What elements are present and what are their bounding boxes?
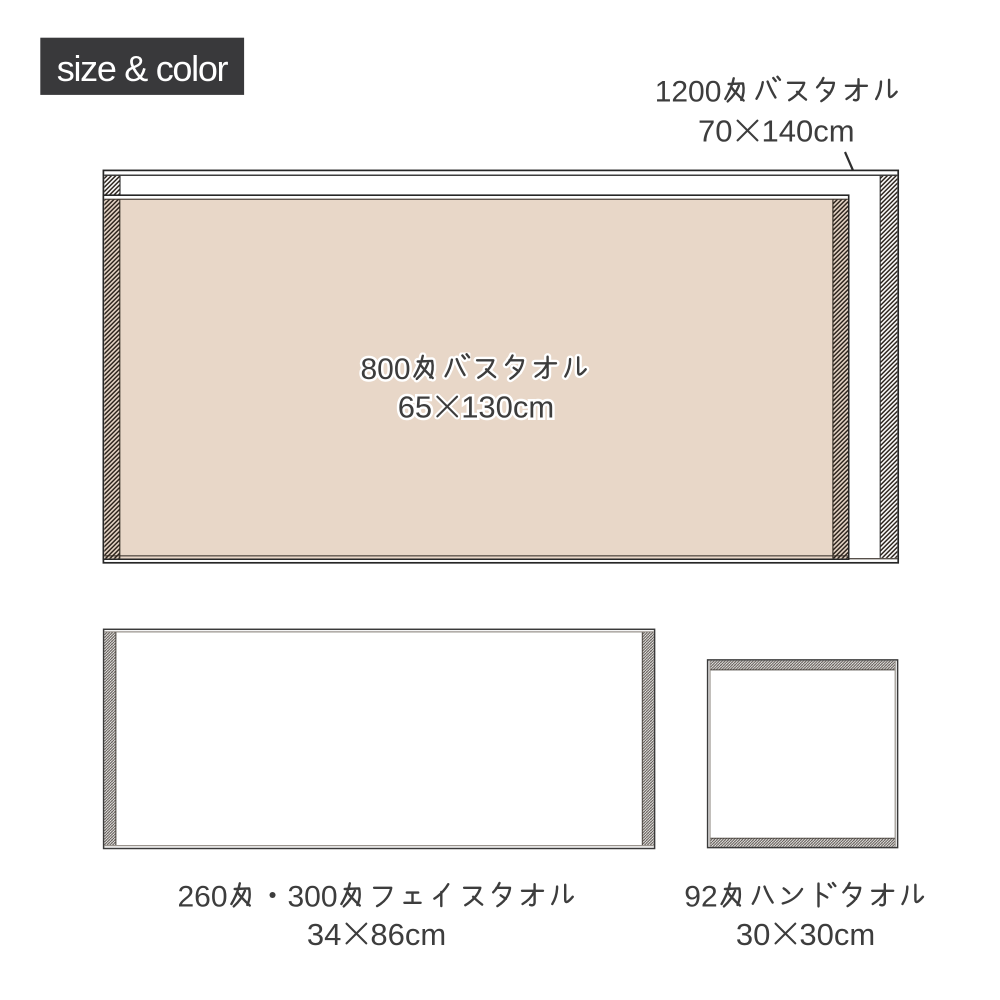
svg-text:130cm: 130cm xyxy=(461,390,554,425)
svg-text:65: 65 xyxy=(398,390,432,425)
svg-text:140cm: 140cm xyxy=(762,114,855,149)
svg-text:70: 70 xyxy=(698,114,732,149)
svg-text:92: 92 xyxy=(684,881,717,914)
svg-text:300: 300 xyxy=(288,881,338,914)
svg-text:800: 800 xyxy=(361,353,411,386)
svg-text:86cm: 86cm xyxy=(370,917,446,952)
svg-text:34: 34 xyxy=(307,917,341,952)
svg-text:size & color: size & color xyxy=(57,48,229,89)
svg-text:30: 30 xyxy=(736,917,770,952)
svg-text:30cm: 30cm xyxy=(799,917,875,952)
svg-text:1200: 1200 xyxy=(655,76,722,109)
svg-text:260: 260 xyxy=(178,881,228,914)
